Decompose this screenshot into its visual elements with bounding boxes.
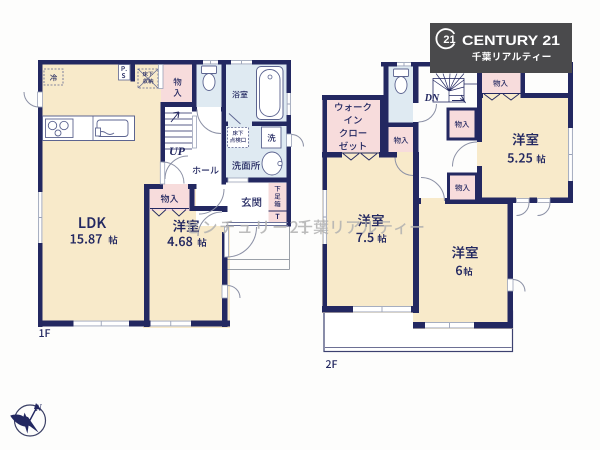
svg-text:CENTURY 21: CENTURY 21 (462, 32, 560, 48)
svg-text:UP: UP (169, 144, 186, 158)
svg-text:N: N (34, 403, 42, 413)
svg-text:21: 21 (443, 34, 455, 46)
svg-text:DN: DN (424, 93, 440, 104)
